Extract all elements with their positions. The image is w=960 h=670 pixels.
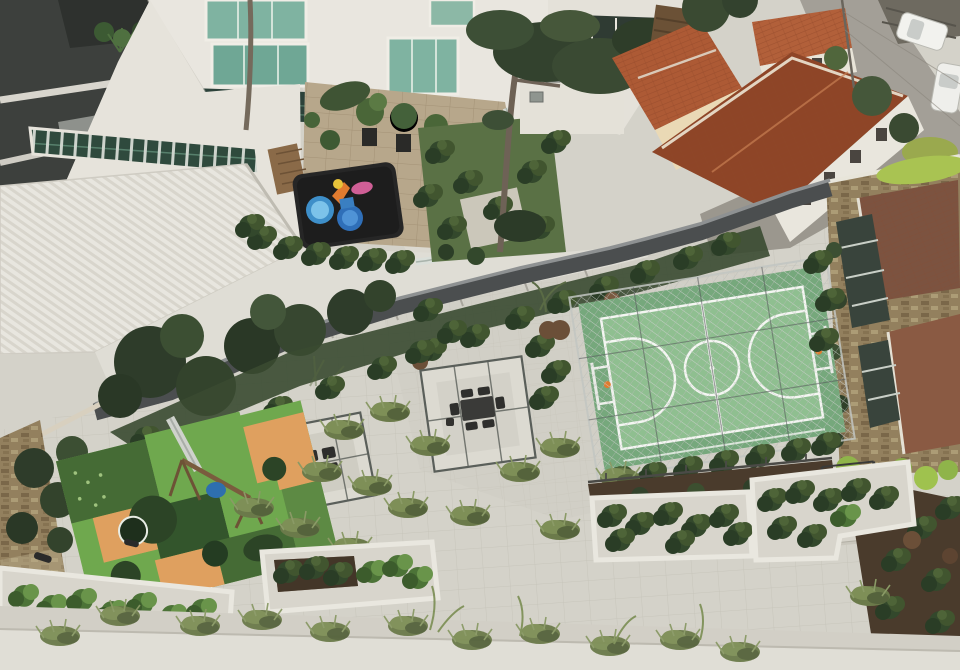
aerial-photo [0, 0, 960, 670]
car-2 [930, 62, 960, 114]
planter-mid-right [592, 492, 753, 560]
scene-canvas [0, 0, 960, 670]
planter-center [262, 542, 438, 612]
swing-seat [206, 482, 226, 498]
